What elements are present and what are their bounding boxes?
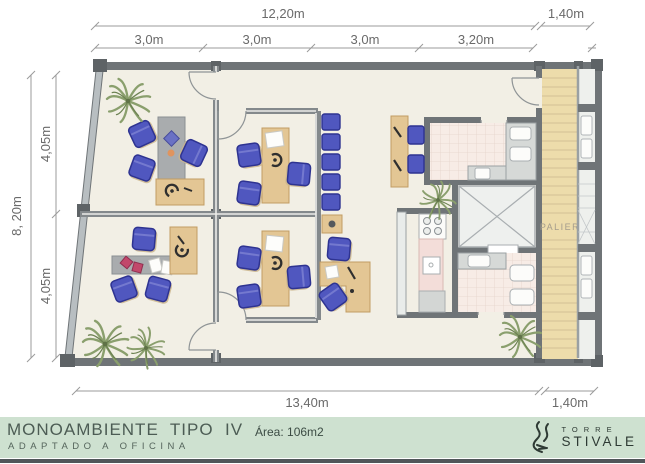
toilet xyxy=(510,265,534,281)
dim-left-seg-2: 4,05m xyxy=(38,268,53,304)
sink xyxy=(510,147,531,161)
right-service-column xyxy=(578,66,596,359)
floor-plan: PALIER xyxy=(60,59,603,373)
chair xyxy=(322,134,340,150)
floorplan-sheet: 12,20m 1,40m 3,0m 3,0m 3,0m 3,20m 8, 20m… xyxy=(0,0,645,464)
chair xyxy=(322,174,340,190)
chair xyxy=(327,237,353,263)
elevator-shaft xyxy=(459,186,535,254)
dim-bottom-total: 13,40m xyxy=(285,395,328,410)
chair xyxy=(236,246,263,273)
table-item xyxy=(168,150,175,157)
paper xyxy=(265,235,283,252)
torre-stivale-logo: TORRE STIVALE xyxy=(525,419,637,455)
dim-seg-2: 3,0m xyxy=(243,32,272,47)
desk xyxy=(156,179,204,205)
bathroom-bottom xyxy=(458,253,536,312)
chair xyxy=(322,114,340,130)
chair xyxy=(132,227,158,253)
floorplan-drawing: 12,20m 1,40m 3,0m 3,0m 3,0m 3,20m 8, 20m… xyxy=(0,0,645,412)
paper xyxy=(265,131,284,148)
bathroom-top xyxy=(430,123,536,180)
waiting-chairs xyxy=(322,114,340,210)
dim-left-seg-1: 4,05m xyxy=(38,126,53,162)
dim-seg-3: 3,0m xyxy=(351,32,380,47)
plan-subtitle: ADAPTADO A OFICINA xyxy=(8,441,190,452)
chair xyxy=(322,194,340,210)
desk-item xyxy=(350,289,354,293)
stairs-palier: PALIER xyxy=(540,69,580,359)
toilet xyxy=(510,289,534,305)
dim-bottom-right: 1,40m xyxy=(552,395,588,410)
kitchen xyxy=(397,212,446,315)
dim-seg-4: 3,20m xyxy=(458,32,494,47)
sink xyxy=(475,168,490,179)
kitchen-sink xyxy=(423,257,440,274)
stove xyxy=(419,214,446,239)
dim-seg-1: 3,0m xyxy=(135,32,164,47)
area-label: Área: 106m2 xyxy=(255,425,324,439)
dim-top-right: 1,40m xyxy=(548,6,584,21)
chair xyxy=(285,162,311,188)
paper xyxy=(325,265,339,279)
plan-title: MONOAMBIENTE TIPO IV xyxy=(7,420,243,440)
chair xyxy=(237,142,264,169)
chair xyxy=(236,181,263,208)
logo-glyph-icon xyxy=(525,419,559,455)
chair xyxy=(408,155,424,173)
logo-line2: STIVALE xyxy=(561,434,637,449)
sink xyxy=(510,127,531,140)
bottom-rule xyxy=(0,459,645,463)
reception-desk xyxy=(391,116,408,187)
kitchen-cabinet xyxy=(419,291,445,312)
dim-top-total: 12,20m xyxy=(261,6,304,21)
chair xyxy=(237,283,264,310)
kitchen-glass-wall xyxy=(397,212,406,315)
chair xyxy=(322,154,340,170)
table-item xyxy=(329,221,336,228)
dim-left-total: 8, 20m xyxy=(9,196,24,236)
chair xyxy=(408,126,424,144)
table-item xyxy=(132,262,143,273)
logo-line1: TORRE xyxy=(561,425,637,434)
sink xyxy=(468,255,490,267)
chair xyxy=(285,265,311,291)
palier-label: PALIER xyxy=(540,222,580,232)
